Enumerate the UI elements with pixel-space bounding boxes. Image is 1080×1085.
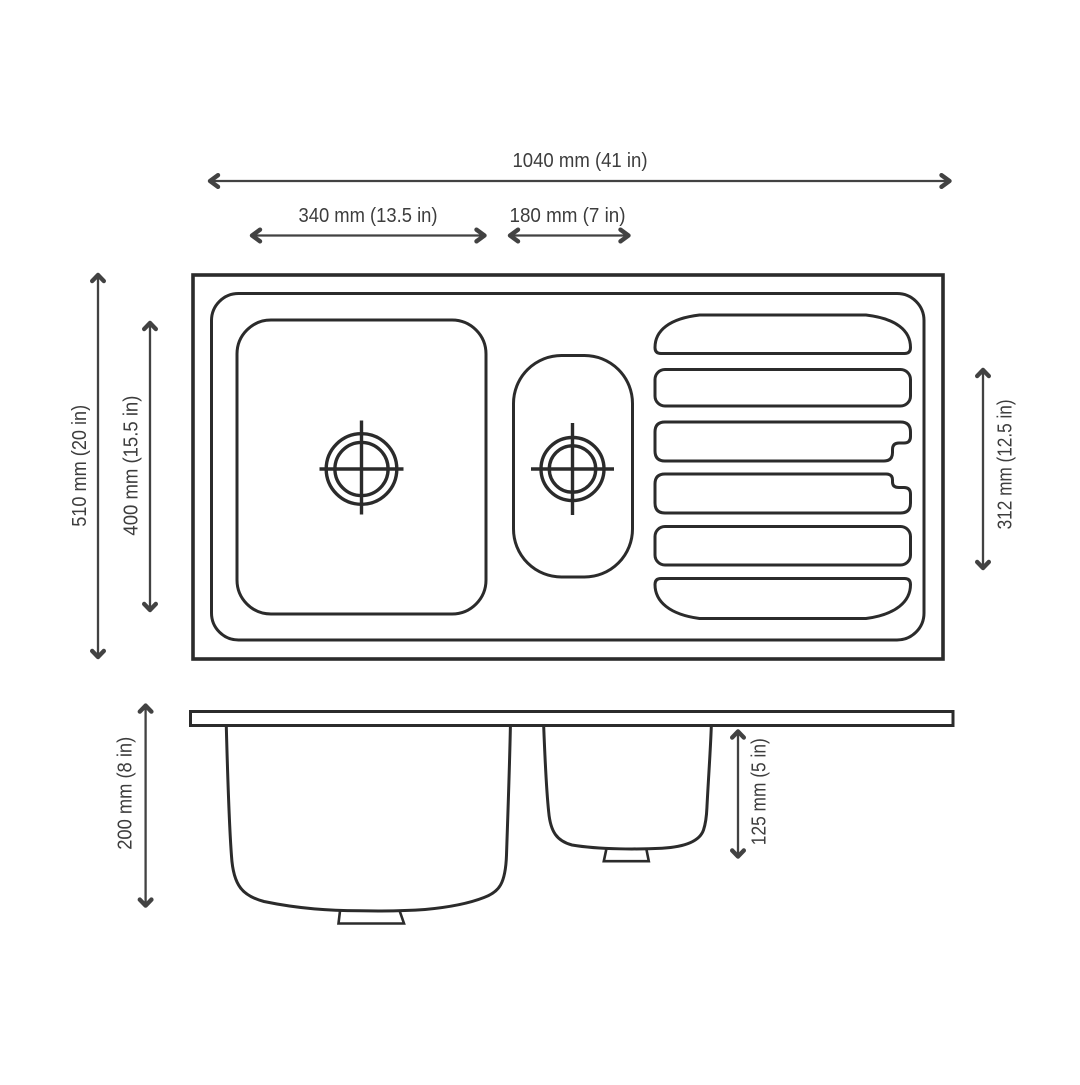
svg-text:400 mm (15.5 in): 400 mm (15.5 in) bbox=[120, 396, 142, 536]
svg-text:312 mm (12.5 in): 312 mm (12.5 in) bbox=[994, 399, 1016, 529]
svg-text:510 mm (20 in): 510 mm (20 in) bbox=[69, 405, 91, 527]
svg-text:125 mm (5 in): 125 mm (5 in) bbox=[748, 738, 770, 845]
svg-text:180 mm (7 in): 180 mm (7 in) bbox=[510, 205, 626, 227]
svg-text:200 mm (8 in): 200 mm (8 in) bbox=[114, 737, 136, 850]
svg-text:1040 mm (41 in): 1040 mm (41 in) bbox=[513, 150, 648, 172]
svg-text:340 mm (13.5 in): 340 mm (13.5 in) bbox=[299, 205, 438, 227]
